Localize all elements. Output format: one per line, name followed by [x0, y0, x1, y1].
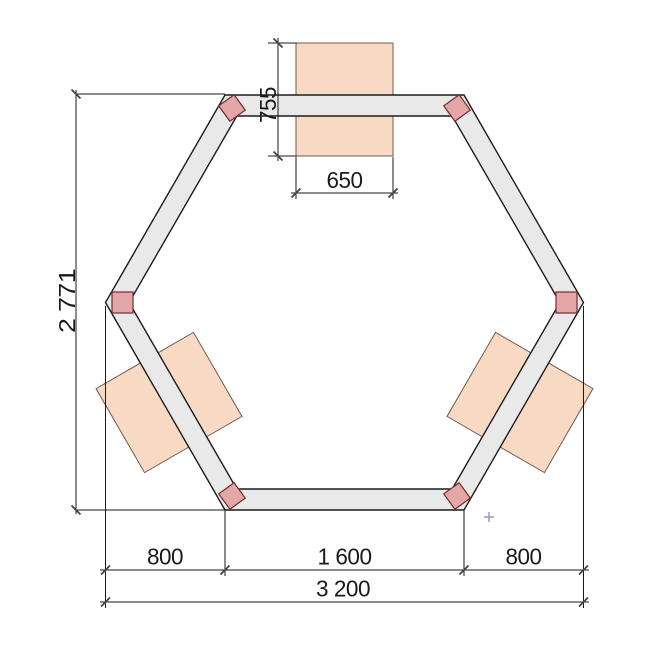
plan-drawing: 755 650 2 771 800 1 600 800 [0, 0, 670, 648]
post-left [112, 292, 133, 313]
dim-text-800-left: 800 [147, 544, 183, 570]
crosshair-cursor-icon [484, 512, 494, 522]
dim-text-3200: 3 200 [316, 576, 370, 602]
dim-text-650: 650 [327, 167, 363, 193]
dim-text-2771: 2 771 [54, 269, 80, 333]
dim-text-1600: 1 600 [318, 544, 372, 570]
dimension-row-segments: 800 1 600 800 [100, 544, 589, 571]
dimension-row-total: 3 200 [100, 576, 589, 603]
dim-text-800-right: 800 [506, 544, 542, 570]
dimension-650: 650 [291, 157, 398, 199]
post-right [556, 292, 577, 313]
dim-text-755: 755 [255, 87, 281, 123]
